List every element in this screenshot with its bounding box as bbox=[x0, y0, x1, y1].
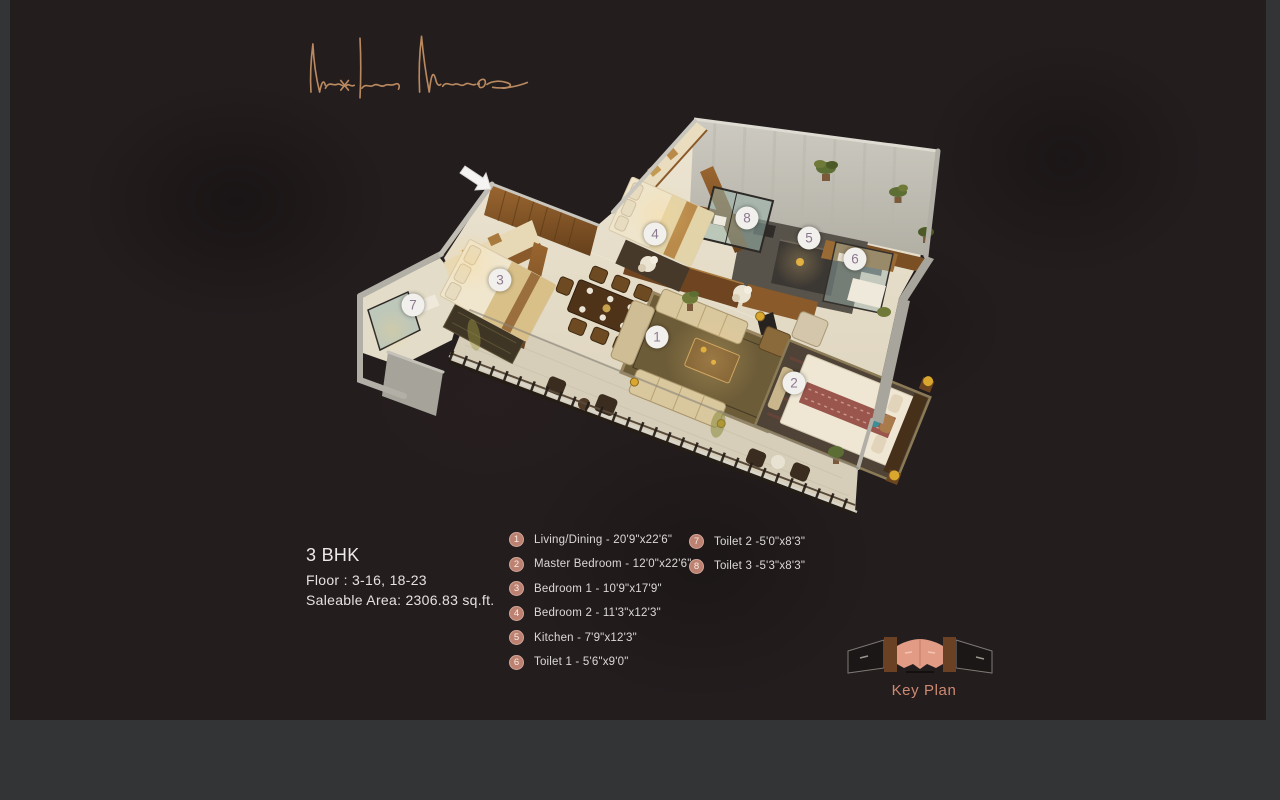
legend-item-label: Living/Dining - 20'9"x22'6" bbox=[534, 534, 672, 546]
legend-item-number: 7 bbox=[689, 534, 704, 549]
unit-info: 3 BHK Floor : 3-16, 18-23 Saleable Area:… bbox=[306, 545, 495, 610]
legend-item-label: Toilet 2 -5'0"x8'3" bbox=[714, 536, 805, 548]
legend-column-1: 1 Living/Dining - 20'9"x22'6" 2 Master B… bbox=[509, 532, 692, 679]
legend-item-number: 2 bbox=[509, 557, 524, 572]
legend-item-number: 3 bbox=[509, 581, 524, 596]
legend-item-label: Toilet 1 - 5'6"x9'0" bbox=[534, 656, 629, 668]
legend-column-2: 7 Toilet 2 -5'0"x8'3" 8 Toilet 3 -5'3"x8… bbox=[689, 534, 805, 583]
unit-type: 3 BHK bbox=[306, 545, 495, 566]
unit-floors: Floor : 3-16, 18-23 bbox=[306, 570, 495, 590]
key-plan-diagram bbox=[845, 630, 1003, 678]
legend-item: 3 Bedroom 1 - 10'9"x17'9" bbox=[509, 581, 692, 596]
legend-item: 6 Toilet 1 - 5'6"x9'0" bbox=[509, 655, 692, 670]
legend-item-label: Master Bedroom - 12'0"x22'6" bbox=[534, 558, 692, 570]
legend-item-label: Bedroom 1 - 10'9"x17'9" bbox=[534, 583, 662, 595]
key-plan: Key Plan bbox=[845, 630, 1003, 699]
legend-item: 1 Living/Dining - 20'9"x22'6" bbox=[509, 532, 692, 547]
floor-plan-render bbox=[340, 90, 980, 550]
brochure-slide: Naxria Minar bbox=[10, 0, 1266, 720]
legend-item-number: 4 bbox=[509, 606, 524, 621]
legend-item-label: Toilet 3 -5'3"x8'3" bbox=[714, 560, 805, 572]
legend-item-number: 8 bbox=[689, 559, 704, 574]
page: Naxria Minar bbox=[0, 0, 1280, 800]
legend-item: 8 Toilet 3 -5'3"x8'3" bbox=[689, 559, 805, 574]
legend-item-number: 5 bbox=[509, 630, 524, 645]
legend-item-number: 1 bbox=[509, 532, 524, 547]
legend-item: 2 Master Bedroom - 12'0"x22'6" bbox=[509, 557, 692, 572]
unit-area: Saleable Area: 2306.83 sq.ft. bbox=[306, 590, 495, 610]
legend-item: 4 Bedroom 2 - 11'3"x12'3" bbox=[509, 606, 692, 621]
legend-item-number: 6 bbox=[509, 655, 524, 670]
legend-item-label: Kitchen - 7'9"x12'3" bbox=[534, 632, 637, 644]
key-plan-label: Key Plan bbox=[845, 682, 1003, 699]
legend-item-label: Bedroom 2 - 11'3"x12'3" bbox=[534, 607, 661, 619]
legend-item: 7 Toilet 2 -5'0"x8'3" bbox=[689, 534, 805, 549]
entrance-arrow-icon bbox=[460, 166, 491, 190]
legend-item: 5 Kitchen - 7'9"x12'3" bbox=[509, 630, 692, 645]
